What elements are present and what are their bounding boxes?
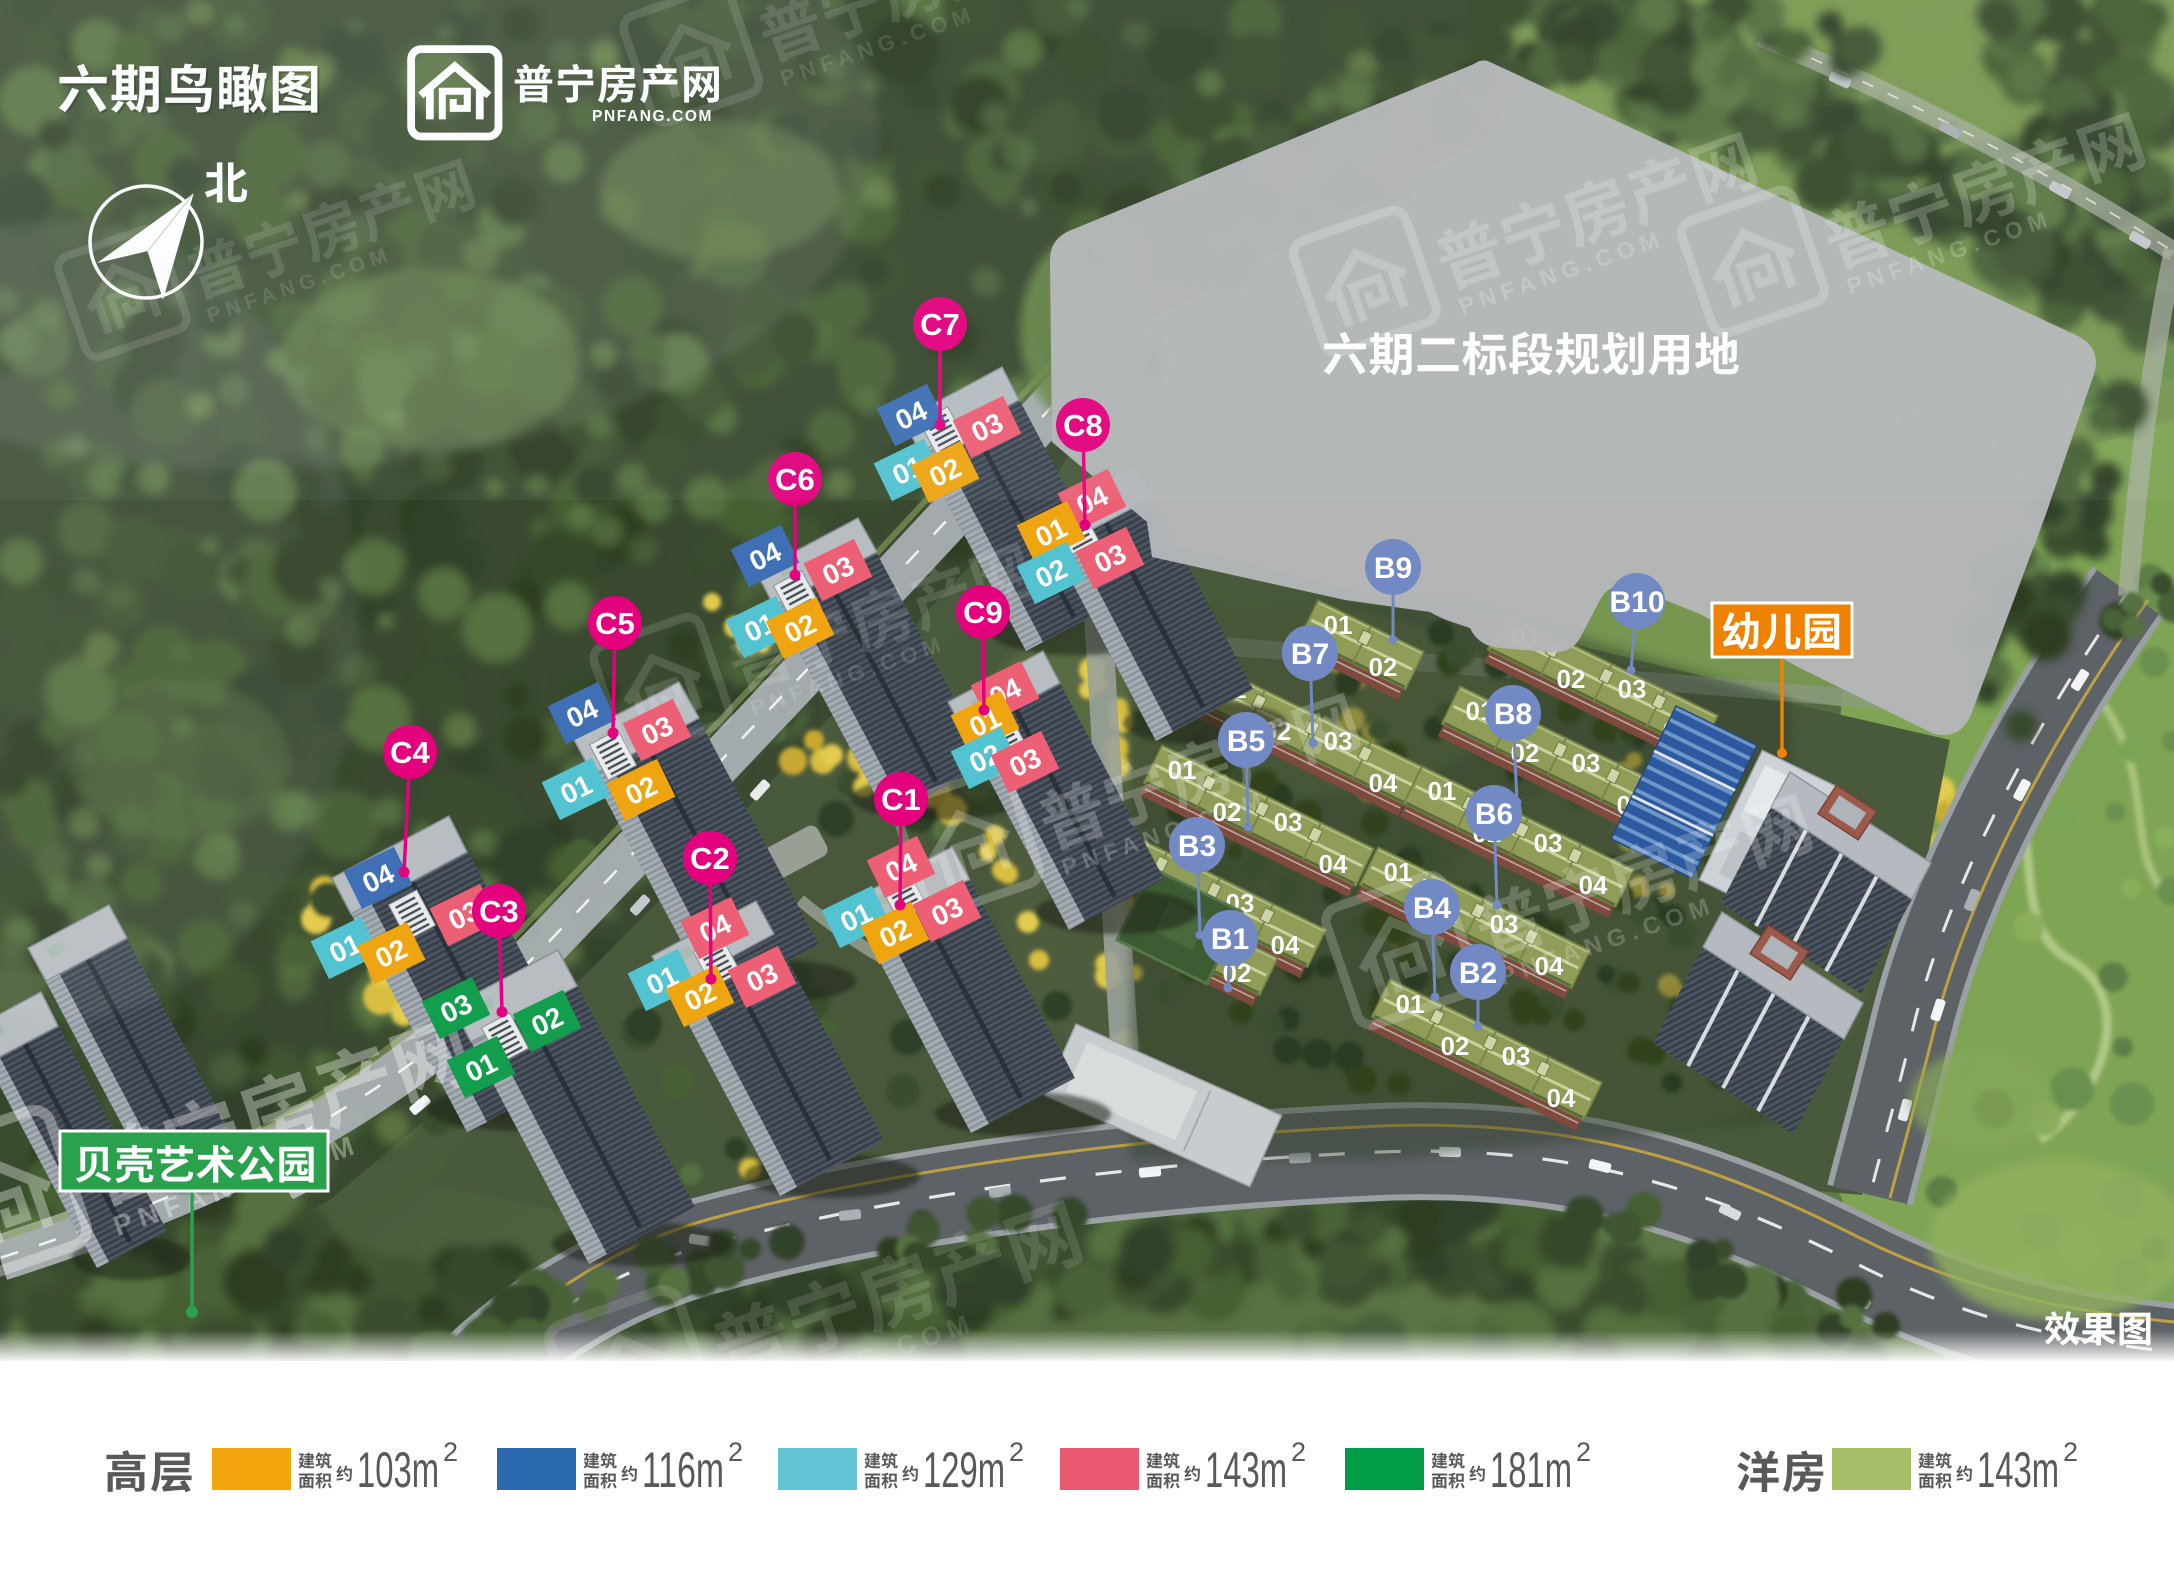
svg-text:181m: 181m (1490, 1442, 1572, 1498)
svg-text:2: 2 (2063, 1437, 2078, 1467)
svg-text:03: 03 (1534, 828, 1563, 858)
svg-text:B8: B8 (1494, 698, 1532, 731)
svg-text:B9: B9 (1374, 552, 1412, 585)
svg-text:103m: 103m (357, 1442, 439, 1498)
svg-text:C1: C1 (881, 782, 921, 817)
svg-text:02: 02 (1441, 1031, 1470, 1061)
svg-text:04: 04 (1319, 849, 1348, 879)
svg-text:C3: C3 (479, 894, 519, 929)
svg-text:C4: C4 (390, 735, 430, 770)
svg-text:C2: C2 (690, 841, 730, 876)
svg-text:03: 03 (1618, 674, 1647, 704)
svg-text:C9: C9 (963, 595, 1003, 630)
svg-text:03: 03 (1274, 807, 1303, 837)
svg-text:B5: B5 (1227, 725, 1265, 758)
svg-text:B10: B10 (1609, 586, 1664, 619)
svg-text:129m: 129m (923, 1442, 1005, 1498)
svg-text:2: 2 (728, 1437, 743, 1467)
svg-text:03: 03 (1572, 748, 1601, 778)
svg-text:B7: B7 (1291, 638, 1329, 671)
svg-text:143m: 143m (1977, 1442, 2059, 1498)
svg-text:B2: B2 (1459, 957, 1497, 990)
svg-text:B4: B4 (1413, 892, 1452, 925)
svg-text:02: 02 (1369, 652, 1398, 682)
svg-text:03: 03 (1502, 1041, 1531, 1071)
svg-text:143m: 143m (1205, 1442, 1287, 1498)
svg-text:02: 02 (1557, 664, 1586, 694)
svg-text:2: 2 (1009, 1437, 1024, 1467)
svg-text:2: 2 (1291, 1437, 1306, 1467)
svg-text:2: 2 (1576, 1437, 1591, 1467)
svg-text:C5: C5 (595, 606, 635, 641)
svg-text:01: 01 (1428, 776, 1457, 806)
svg-text:04: 04 (1369, 768, 1398, 798)
svg-text:B3: B3 (1178, 830, 1216, 863)
svg-text:116m: 116m (642, 1442, 724, 1498)
svg-text:04: 04 (1547, 1083, 1576, 1113)
svg-text:2: 2 (443, 1437, 458, 1467)
svg-text:B6: B6 (1475, 798, 1513, 831)
svg-text:B1: B1 (1211, 923, 1249, 956)
